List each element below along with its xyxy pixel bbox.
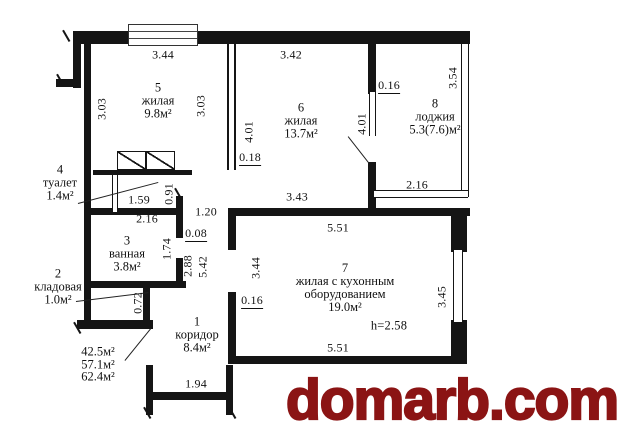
dim-bath-height: 1.74 xyxy=(160,238,175,260)
loggia-glazing xyxy=(369,92,376,136)
room5-label: 5 жилая 9.8м² xyxy=(142,82,175,121)
wall-room7-left-lower xyxy=(228,292,236,364)
dim-storage-height: 0.72 xyxy=(131,292,146,314)
dim-vestibule: 1.94 xyxy=(185,377,207,392)
dim-doorway-120: 1.20 xyxy=(195,205,217,220)
tick-top-left xyxy=(63,30,71,42)
dim-room6-bottom: 3.43 xyxy=(286,190,308,205)
room8-area: 5.3(7.6)м² xyxy=(409,124,460,137)
dim-bath-width: 2.16 xyxy=(136,212,158,227)
room2-area: 1.0м² xyxy=(34,294,82,307)
wall-room7-left-upper xyxy=(228,208,236,250)
floor-plan: 3.44 3.42 3.54 0.16 3.03 3.03 4.01 4.01 … xyxy=(0,0,630,443)
door-swing-loggia xyxy=(347,136,369,164)
room1-area: 8.4м² xyxy=(175,342,219,355)
room6-label: 6 жилая 13.7м² xyxy=(284,102,318,141)
room5-area: 9.8м² xyxy=(142,108,175,121)
loggia-right-wall xyxy=(461,44,469,197)
room3-area: 3.8м² xyxy=(109,261,145,274)
dim-room7-left: 3.44 xyxy=(249,257,264,279)
dim-room7-right: 3.45 xyxy=(435,286,450,308)
window-room7-right xyxy=(453,250,463,322)
dim-toilet-height: 0.91 xyxy=(162,183,177,205)
wall-loggia-stub-bottom xyxy=(368,162,376,216)
dim-room5-left: 3.03 xyxy=(95,98,110,120)
dim-room6-top: 3.42 xyxy=(280,48,302,63)
room6-area: 13.7м² xyxy=(284,128,318,141)
dim-toilet-width: 1.59 xyxy=(128,193,150,208)
dim-loggia-stub: 0.16 xyxy=(378,78,400,94)
total-overall-area: 62.4м² xyxy=(81,370,115,383)
watermark-domarb: domarb.com xyxy=(286,367,618,433)
room7-label: 7 жилая с кухонным оборудованием 19.0м² xyxy=(296,262,395,314)
dim-room6-right: 4.01 xyxy=(355,113,370,135)
vent-shaft-2 xyxy=(146,151,175,170)
dim-loggia-right: 3.54 xyxy=(446,67,461,89)
dim-corridor-542: 5.42 xyxy=(196,256,211,278)
wall-bath-bottom xyxy=(84,281,186,288)
dim-room5-right: 3.03 xyxy=(194,95,209,117)
wall-room7-bottom xyxy=(228,356,467,364)
wall-room6-room7 xyxy=(236,208,470,216)
wall-right-pier-bottom xyxy=(451,320,467,364)
dim-stub-008: 0.08 xyxy=(185,226,207,242)
total-living-area: 42.5м² xyxy=(81,345,115,358)
room1-label: 1 коридор 8.4м² xyxy=(175,316,219,355)
wall-toilet-bottom xyxy=(84,208,182,215)
dim-room5-top: 3.44 xyxy=(152,48,174,63)
wall-shelf-room5 xyxy=(93,170,192,175)
dim-room7-bottom: 5.51 xyxy=(327,341,349,356)
wall-vestibule-bottom xyxy=(146,392,233,400)
dim-partition-018: 0.18 xyxy=(239,150,261,166)
total-areas: 42.5м² 57.1м² 62.4м² xyxy=(81,345,115,383)
room4-label: 4 туалет 1.4м² xyxy=(43,164,77,203)
dim-loggia-bottom: 2.16 xyxy=(406,178,428,193)
room7-ceiling-height: h=2.58 xyxy=(371,319,407,334)
wall-loggia-stub-top xyxy=(368,44,376,94)
wall-right-pier-top xyxy=(451,208,467,252)
room8-label: 8 лоджия 5.3(7.6)м² xyxy=(409,98,460,137)
wall-stub-corridor-top xyxy=(176,196,183,238)
partition-room5-room6 xyxy=(227,44,236,170)
room3-label: 3 ванная 3.8м² xyxy=(109,235,145,274)
wall-bottom-left xyxy=(77,320,153,329)
dim-room6-left: 4.01 xyxy=(242,121,257,143)
window-room5-top xyxy=(128,24,198,46)
vent-shaft-1 xyxy=(117,151,146,170)
leader-totals xyxy=(124,328,151,361)
room4-area: 1.4м² xyxy=(43,190,77,203)
dim-corridor-288: 2.88 xyxy=(181,255,196,277)
dim-room7-wall-016: 0.16 xyxy=(241,293,263,309)
wall-vestibule-left xyxy=(146,365,153,415)
room2-label: 2 кладовая 1.0м² xyxy=(34,268,82,307)
wall-left xyxy=(84,44,91,321)
dim-room7-top: 5.51 xyxy=(327,221,349,236)
room7-area: 19.0м² xyxy=(296,301,395,314)
